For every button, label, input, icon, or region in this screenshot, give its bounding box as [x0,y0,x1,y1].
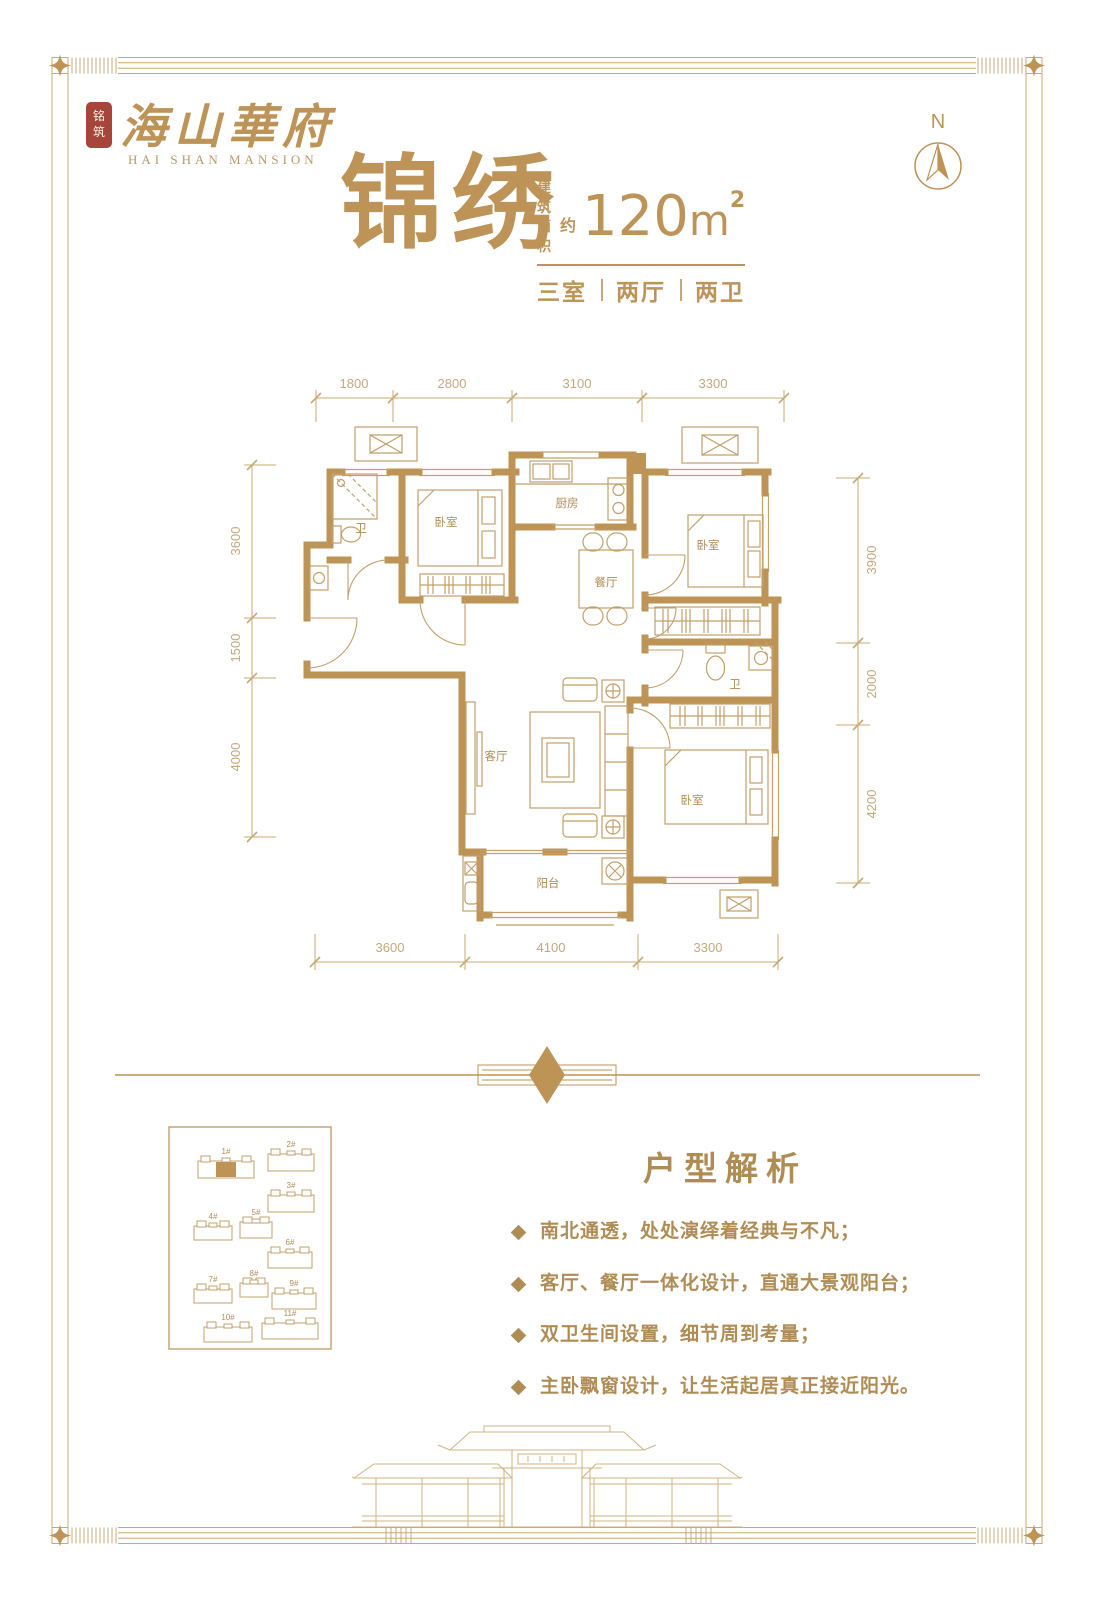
site-building: 2# [268,1140,314,1171]
analysis-bullet-text: 主卧飘窗设计，让生活起居真正接近阳光。 [540,1375,920,1400]
dim-bottom: 4100 [537,940,566,955]
dim-right: 4200 [864,790,879,819]
diamond-bullet-icon [511,1276,527,1292]
flue-shaft [629,453,646,474]
area-approx: 约 [560,212,576,236]
site-building-label: 1# [222,1147,231,1156]
divider-diamond [529,1046,565,1104]
north-compass-icon: N [898,106,978,206]
dim-left: 1500 [230,634,243,663]
dim-left: 4000 [230,743,243,772]
dim-right: 2000 [864,670,879,699]
analysis-bullet-text: 客厅、餐厅一体化设计，直通大景观阳台； [540,1272,920,1297]
diamond-bullet-icon [511,1328,527,1344]
room-label: 厨房 [556,497,579,510]
room-label: 卧室 [681,793,704,807]
analysis-bullet-text: 双卫生间设置，细节周到考量； [540,1323,820,1348]
layout-part-baths: 两卫 [695,273,745,307]
diamond-bullet-icon [511,1225,527,1241]
analysis-bullet: 客厅、餐厅一体化设计，直通大景观阳台； [505,1272,945,1297]
floorplan-poster: { "brand": { "seal_line1": "铭", "seal_li… [0,0,1094,1600]
site-building: 4# [194,1212,232,1240]
room-labels: 卧室厨房餐厅卧室卫卫客厅阳台卧室 [355,497,741,890]
analysis-bullet-text: 南北通透，处处演绎着经典与不凡； [540,1220,860,1245]
walls [307,455,778,918]
unit-name: 锦绣 [340,150,564,262]
site-building: 9# [272,1279,316,1309]
site-building-label: 4# [209,1212,218,1221]
analysis-bullet: 主卧飘窗设计，让生活起居真正接近阳光。 [505,1375,945,1400]
site-building: 3# [268,1181,314,1212]
gate-silhouette [352,1398,742,1528]
site-building: 8# [240,1269,268,1297]
room-label: 餐厅 [595,575,618,589]
dim-right: 3900 [864,546,879,575]
floor-plan: 1800280031003300360041003300360015004000… [230,350,880,990]
brand-name: 海山華府 [120,88,336,157]
site-building-label: 2# [287,1140,296,1149]
title-separator [537,264,745,266]
site-building: 1# [198,1147,254,1178]
room-label: 客厅 [485,749,508,763]
site-building: 10# [204,1313,252,1342]
seal-char-2: 筑 [93,125,105,141]
brand-name-en: HAI SHAN MANSION [128,152,318,168]
site-building-label: 8# [250,1269,259,1278]
layout-part-halls: 两厅 [616,273,666,307]
room-label: 卧室 [697,538,720,552]
site-building-label: 6# [286,1238,295,1247]
room-label: 卫 [355,523,367,535]
site-building-label: 7# [209,1275,218,1284]
diamond-bullet-icon [511,1380,527,1396]
dim-top: 2800 [438,376,467,391]
dimension-labels: 1800280031003300360041003300360015004000… [230,376,879,955]
analysis-bullet-list: 南北通透，处处演绎着经典与不凡；客厅、餐厅一体化设计，直通大景观阳台；双卫生间设… [505,1220,945,1400]
dim-top: 1800 [340,376,369,391]
room-label: 卧室 [435,515,458,529]
site-plan: 1#2#3#4#5#6#7#8#9#10#11# [168,1126,332,1350]
site-building: 11# [262,1309,318,1339]
site-building: 7# [194,1275,232,1303]
site-building: 5# [240,1208,272,1238]
site-building: 6# [268,1238,312,1268]
analysis-bullet: 南北通透，处处演绎着经典与不凡； [505,1220,945,1245]
site-building-label: 11# [284,1309,297,1318]
unit-title-details: 建筑 面积 约 120m2 三室 两厅 两卫 [537,178,745,307]
room-label: 卫 [729,679,741,691]
layout-part-rooms: 三室 [537,273,587,307]
layout-summary: 三室 两厅 两卫 [537,273,745,307]
dim-left: 3600 [230,527,243,556]
room-label: 阳台 [537,876,560,890]
site-building-label: 10# [221,1313,235,1322]
analysis-title: 户型解析 [505,1142,945,1190]
layout-divider [680,279,682,301]
analysis-section: 户型解析 南北通透，处处演绎着经典与不凡；客厅、餐厅一体化设计，直通大景观阳台；… [505,1142,945,1427]
site-building-label: 5# [252,1208,261,1217]
layout-divider [601,279,603,301]
dim-bottom: 3600 [376,940,405,955]
site-building-label: 3# [287,1181,296,1190]
site-building-label: 9# [290,1279,299,1288]
brand-seal: 铭 筑 [86,102,112,148]
svg-text:N: N [931,111,945,133]
dim-bottom: 3300 [694,940,723,955]
seal-char-1: 铭 [93,109,105,125]
dim-top: 3300 [699,376,728,391]
area-value: 120m2 [582,189,745,245]
area-prefix: 建筑 面积 [537,178,552,256]
dim-top: 3100 [563,376,592,391]
analysis-bullet: 双卫生间设置，细节周到考量； [505,1323,945,1348]
